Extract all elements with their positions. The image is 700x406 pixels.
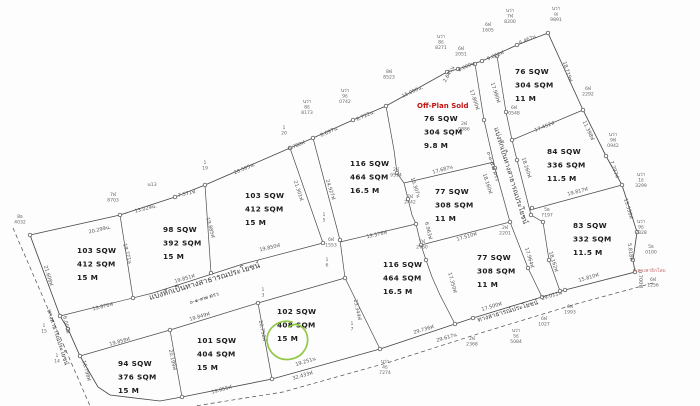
survey-vertex [311,136,315,140]
survey-vertex [482,118,486,122]
plot-area-label: 77 SQW [477,253,511,262]
distance-label: 19.850ฬ [259,242,282,254]
plot-area-label: 15 M [245,218,266,227]
survey-vertex [173,195,177,199]
survey-vertex [384,104,388,108]
survey-vertex [563,288,567,292]
survey-vertex [118,213,122,217]
distance-label: 21.608ฬ [42,265,55,288]
survey-vertex [480,59,484,63]
survey-marker-label: 3 [262,292,265,298]
survey-marker-label: 14 [54,358,60,364]
distance-label: 6.000น [457,60,476,73]
survey-marker-label: 2ฬ [502,224,509,231]
survey-marker-label: 2ฬ [393,166,400,173]
road-area-note: ๐-๑-๙๗ ตรว [189,292,220,306]
plot-area-label: 11.5 M [573,248,603,257]
plot-area-label: 98 SQW [163,225,197,234]
plot-area-label: 11.5 M [547,174,577,183]
survey-vertex [508,220,512,224]
survey-marker-label: 8ธ [304,104,310,110]
plot-area-label: 101 SQW [197,336,236,345]
distance-label: 18.719ฬ [561,61,574,84]
survey-marker-label: 7 [351,326,354,332]
plot-area-label: 464 SQM [350,173,389,182]
survey-marker-label: 2201 [499,230,511,236]
survey-marker-label: 1553 [325,242,337,248]
survey-marker-label: 2292 [582,91,594,97]
survey-vertex [28,233,32,237]
distance-label: 17.964ฬ [523,247,536,270]
survey-vertex [414,222,418,226]
survey-marker-label: นว่า [552,6,561,12]
survey-marker-label: 8271 [435,45,447,51]
distance-label: 19.576ฬ [366,229,389,241]
survey-vertex [581,108,585,112]
survey-marker-label: 5084 [510,339,522,345]
survey-marker-label: 8523 [383,74,395,80]
plot-area-label: 94 SQW [118,359,152,368]
survey-marker-label: 7197 [541,212,553,218]
distance-label: 8.722น. [356,109,376,123]
survey-vertex [515,43,519,47]
survey-marker-label: 2051 [455,51,467,57]
survey-marker-label: 5ธ [513,333,519,339]
plot-area-label: 103 SQW [77,246,116,255]
survey-vertex [78,354,82,358]
distance-label: 16.798ฬ [80,360,92,383]
survey-marker-label: นว่า [381,359,390,365]
distance-label: 17.510ฬ [456,230,479,243]
land-survey-map: 20.299น.13.029น.7.571ฬ20.505น.6.780ฬ8.69… [0,0,700,406]
plot-area-label: 16.5 M [350,186,380,195]
survey-vertex [343,276,347,280]
plot-area-label: 464 SQM [383,274,422,283]
survey-vertex [131,296,135,300]
survey-map-svg: 20.299น.13.029น.7.571ฬ20.505น.6.780ฬ8.69… [0,0,700,406]
survey-marker-label: 8173 [301,110,313,116]
distance-label: 23.344ฬ [352,299,363,321]
survey-marker-label: 5ธ [648,244,654,250]
plot-area-label: 392 SQM [163,239,202,248]
survey-marker-label: นว่า [512,328,521,334]
survey-vertex [471,316,475,320]
plot-area-label: 412 SQM [77,260,116,269]
survey-vertex [546,31,550,35]
plot-area-label: 102 SQW [277,307,316,316]
survey-marker-label: 4032 [14,219,26,225]
distance-label: 24.927ฬ [324,179,337,202]
distance-label: 20.299น. [88,224,112,235]
distance-label: 11.398ฬ [581,119,596,141]
survey-marker-label: 9ฬ [610,136,617,143]
survey-marker-label: 9ธ [342,93,348,99]
survey-marker-label: 1ธ [638,177,644,183]
note-label: ฝ่ ทางสาธิกโลม [633,267,666,274]
plot-area-label: 15 M [163,252,184,261]
survey-marker-label: 19 [202,165,208,171]
survey-vertex [541,220,545,224]
survey-marker-label: 6ฬ [511,104,518,111]
plot-area-label: 15 M [118,386,139,395]
survey-marker-label: 6ฬ [328,236,335,243]
plot-area-label: 15 M [277,334,298,343]
survey-marker-label: นว่า [506,8,515,14]
distance-label: 6.467น [518,34,537,47]
survey-marker-label: 1 [323,212,326,218]
survey-marker-label: 1605 [482,27,494,33]
survey-marker-label: 1 [283,125,286,131]
survey-marker-label: นว่า [341,88,350,94]
survey-marker-label: 1 [43,323,46,329]
survey-vertex [351,118,355,122]
survey-marker-label: 7ฬ [507,12,514,19]
survey-vertex [530,206,534,210]
plot-division-line [345,278,380,349]
survey-vertex [510,138,514,142]
survey-marker-label: ฆ13 [147,182,156,188]
survey-marker-label: 2ฬ [469,335,476,342]
distance-label: 6.963ฬ [423,221,434,240]
survey-vertex [338,238,342,242]
survey-vertex [529,213,533,217]
plot-area-label: 15 M [77,273,98,282]
distance-label: 6.000ฬ [61,315,72,334]
distance-label: 17.452ฬ [533,119,556,134]
survey-marker-label: 8ธ [438,39,444,45]
distance-label: 7.297ฬ [608,160,621,180]
survey-marker-label: 6 [326,262,329,268]
distance-label: 19.858ฬ [109,335,132,347]
survey-marker-label: 0742 [339,99,351,105]
survey-marker-label: 7274 [379,370,391,376]
survey-vertex [378,347,382,351]
survey-vertex [203,183,207,187]
survey-marker-label: 8ฬ [386,68,393,75]
distance-label: 13.536ฬ [622,198,635,221]
distance-label: 19.870ฬ [92,300,115,312]
survey-marker-label: นว่า [609,132,618,138]
survey-marker-label: 1256 [647,282,659,288]
survey-marker-label: นว่า [637,172,646,178]
survey-marker-label: 1 [326,257,329,263]
plot-area-label: 116 SQW [350,159,389,168]
survey-marker-label: นว่า [637,219,646,225]
distance-label: 6.780ฬ [287,139,307,153]
survey-marker-label: 6ฬ [585,85,592,92]
survey-marker-label: 6ฬ [567,303,574,310]
plot-area-label: 77 SQW [435,187,469,196]
plot-area-label: 76 SQW [515,67,549,76]
survey-marker-label: 2368 [466,341,478,347]
plot-area-label: 11 M [515,94,536,103]
plot-area-label: 376 SQM [118,373,157,382]
plot-area-label: 15 M [197,363,218,372]
plot-division-line [258,303,272,379]
survey-marker-label: 9514 [390,172,402,178]
survey-marker-label: 2760 [416,244,428,250]
survey-marker-label: 2328 [635,230,647,236]
survey-marker-label: 7ฬ [407,193,414,200]
plot-area-label: 336 SQM [547,161,586,170]
survey-marker-label: 6ฬ [458,45,465,52]
survey-marker-label: 4ธ [382,364,388,370]
distance-label: 17.980ฬ [489,82,502,105]
plot-area-label: 11 M [435,214,456,223]
plot-division-line [290,148,323,243]
survey-marker-label: 5 [323,217,326,223]
plot-area-label: 9.8 M [424,141,448,150]
plot-area-label: 308 SQM [435,201,474,210]
survey-marker-label: นว่า [437,34,446,40]
survey-marker-label: 1027 [538,321,550,327]
survey-marker-label: 1 [351,321,354,327]
distance-label: 32.433ฬ [292,369,315,382]
survey-marker-label: 8200 [504,19,516,25]
survey-marker-label: 6ฬ [650,276,657,283]
distance-label: 20.505น. [233,162,256,176]
survey-marker-label: 6ฬ [541,315,548,322]
distance-label: 19.855ฬ [211,383,234,395]
distance-label: 9.060ฬ [486,49,506,63]
survey-marker-label: 2442 [404,199,416,205]
distance-label: 29.011น [541,290,563,302]
plot-area-label: 76 SQW [424,114,458,123]
survey-marker-label: 0548 [508,110,520,116]
survey-marker-label: 3299 [635,183,647,189]
survey-marker-label: 0100 [645,249,657,255]
survey-vertex [424,258,428,262]
distance-label: 8.697น. [320,125,340,139]
distance-label: 7.571ฬ [177,188,196,199]
survey-marker-label: 1 [204,160,207,166]
survey-marker-label: 9ธ [638,224,644,230]
survey-marker-label: 2ฬ [461,120,468,127]
survey-marker-label: 5ธ [544,207,550,213]
survey-marker-label: 8703 [107,197,119,203]
survey-marker-label: 15 [41,328,47,334]
distance-label: 18.160ฬ [481,173,494,196]
distance-label: 13.029น. [134,203,158,214]
distance-label: 19.817ฬ [567,185,590,197]
distance-label: 5.818ฬ [626,243,635,262]
survey-marker-label: 1993 [564,309,576,315]
survey-vertex [453,322,457,326]
survey-vertex [515,158,519,162]
plot-area-label: 103 SQW [245,191,284,200]
survey-vertex [620,183,624,187]
plot-area-label: 11 M [477,280,498,289]
off-plan-sold-label: Off-Plan Sold [417,102,468,110]
plot-area-label: 83 SQW [573,221,607,230]
survey-marker-label: 20 [281,130,287,136]
distance-label: 17.350ฬ [446,272,458,295]
plot-area-label: 84 SQW [547,147,581,156]
plot-area-label: 332 SQM [573,235,612,244]
distance-label: 19.251น [295,356,317,368]
plot-area-label: 304 SQM [515,81,554,90]
distance-label: 15.000น. [401,84,424,99]
plot-area-label: 308 SQM [477,267,516,276]
plot-area-label: 116 SQW [383,260,422,269]
survey-vertex [168,328,172,332]
survey-marker-label: 1 [262,287,265,293]
survey-marker-label: ฌ [554,12,558,17]
survey-marker-label: 6ฬ [485,21,492,28]
survey-marker-label: 9891 [550,17,562,23]
plot-area-label: 404 SQM [197,350,236,359]
survey-marker-label: 0942 [607,143,619,149]
plot-area-label: 16.5 M [383,287,413,296]
survey-vertex [270,377,274,381]
survey-marker-label: 7ฬ [419,238,426,245]
distance-label: 18.260ฬ [520,157,533,180]
distance-label: 2.641น [442,65,456,84]
survey-marker-label: 7ฬ [110,191,117,198]
plot-area-label: 412 SQM [245,205,284,214]
survey-marker-label: 8ธ [17,214,23,220]
plot-division-line [313,138,345,278]
distance-label: 21.301ฬ [292,180,305,203]
survey-marker-label: 1 [56,353,59,359]
plot-area-label: 304 SQM [424,128,463,137]
distance-label: 19.885ฬ [204,217,216,240]
distance-label: 29.617น [436,332,458,344]
survey-marker-label: นว่า [303,99,312,105]
survey-vertex [180,395,184,399]
survey-vertex [604,154,608,158]
distance-label: 19.771น [121,243,132,265]
distance-label: 20.199ฬ [167,349,178,371]
survey-vertex [256,301,260,305]
